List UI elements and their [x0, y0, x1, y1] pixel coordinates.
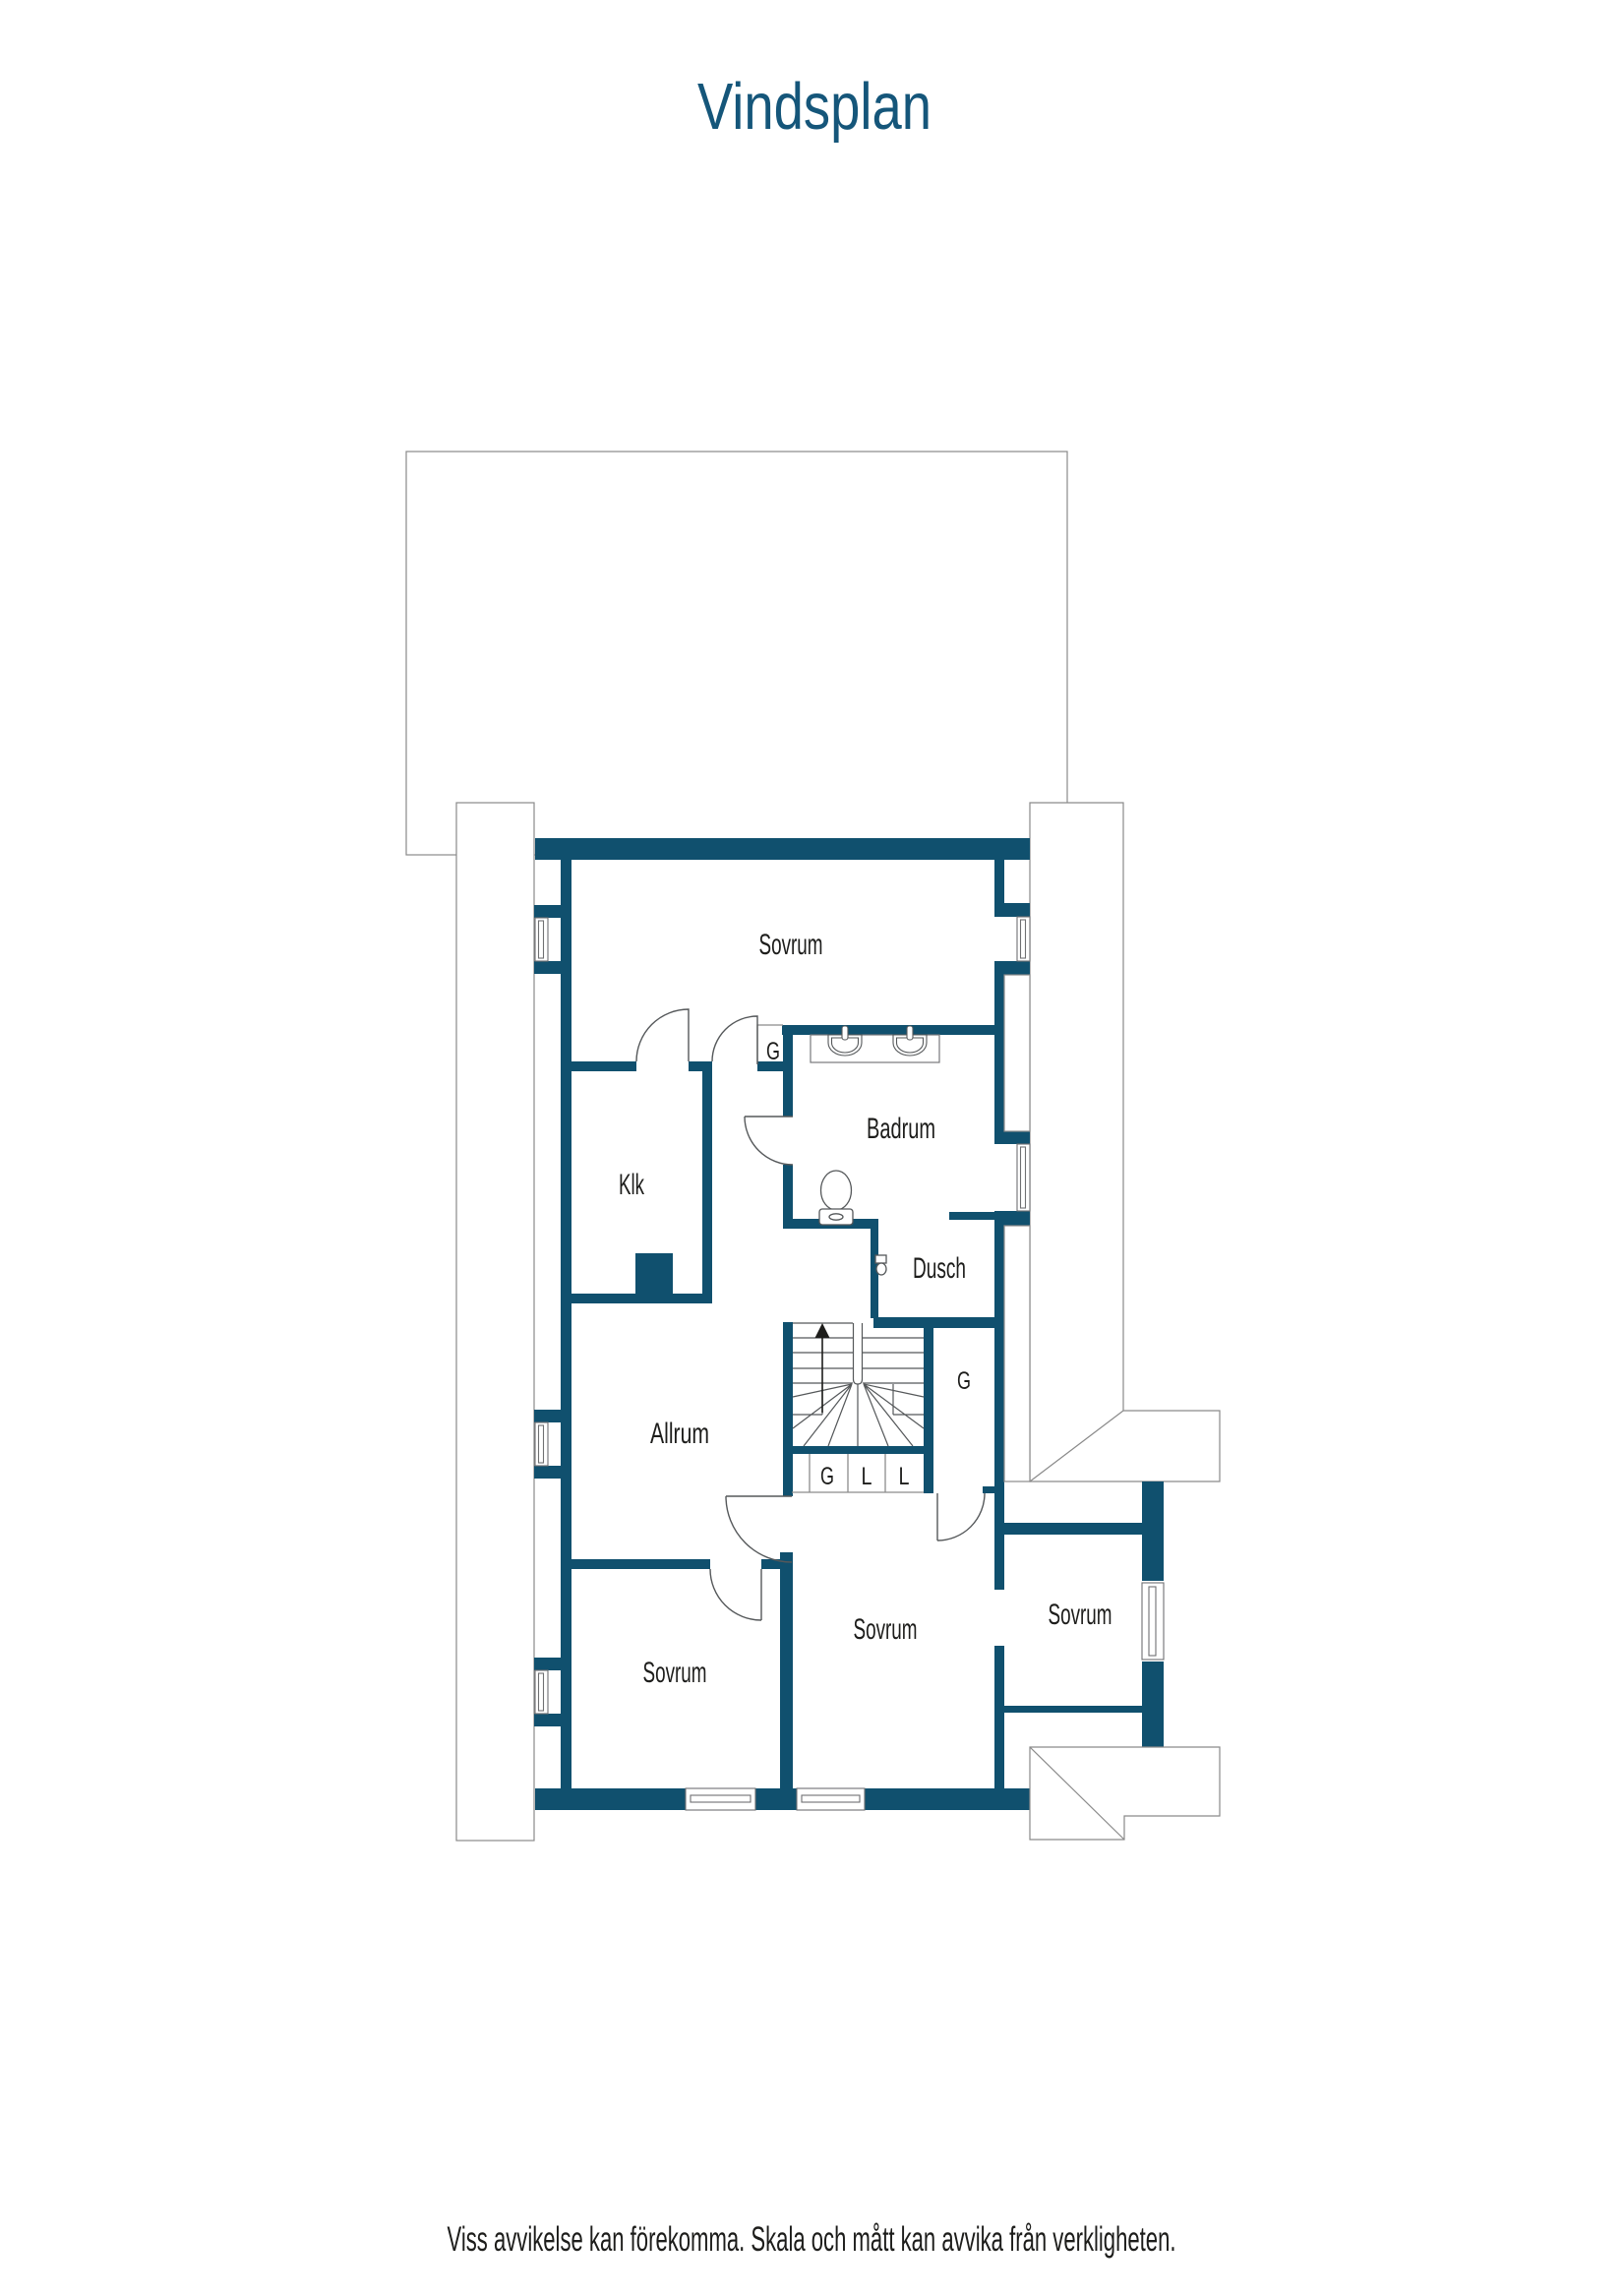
svg-text:Allrum: Allrum — [650, 1418, 709, 1450]
svg-text:Vindsplan: Vindsplan — [697, 70, 932, 144]
svg-text:G: G — [957, 1367, 971, 1395]
svg-text:Sovrum: Sovrum — [1049, 1599, 1112, 1631]
svg-text:L: L — [899, 1463, 910, 1490]
svg-text:L: L — [862, 1463, 872, 1490]
svg-text:Sovrum: Sovrum — [643, 1657, 707, 1689]
svg-text:G: G — [820, 1463, 834, 1490]
svg-text:Klk: Klk — [619, 1169, 645, 1201]
svg-text:Dusch: Dusch — [913, 1252, 966, 1285]
svg-text:Viss avvikelse kan förekomma.: Viss avvikelse kan förekomma. Skala och … — [448, 2220, 1176, 2259]
svg-text:G: G — [766, 1038, 780, 1065]
svg-text:Badrum: Badrum — [867, 1113, 935, 1145]
svg-text:Sovrum: Sovrum — [854, 1613, 918, 1646]
svg-text:Sovrum: Sovrum — [759, 929, 823, 961]
